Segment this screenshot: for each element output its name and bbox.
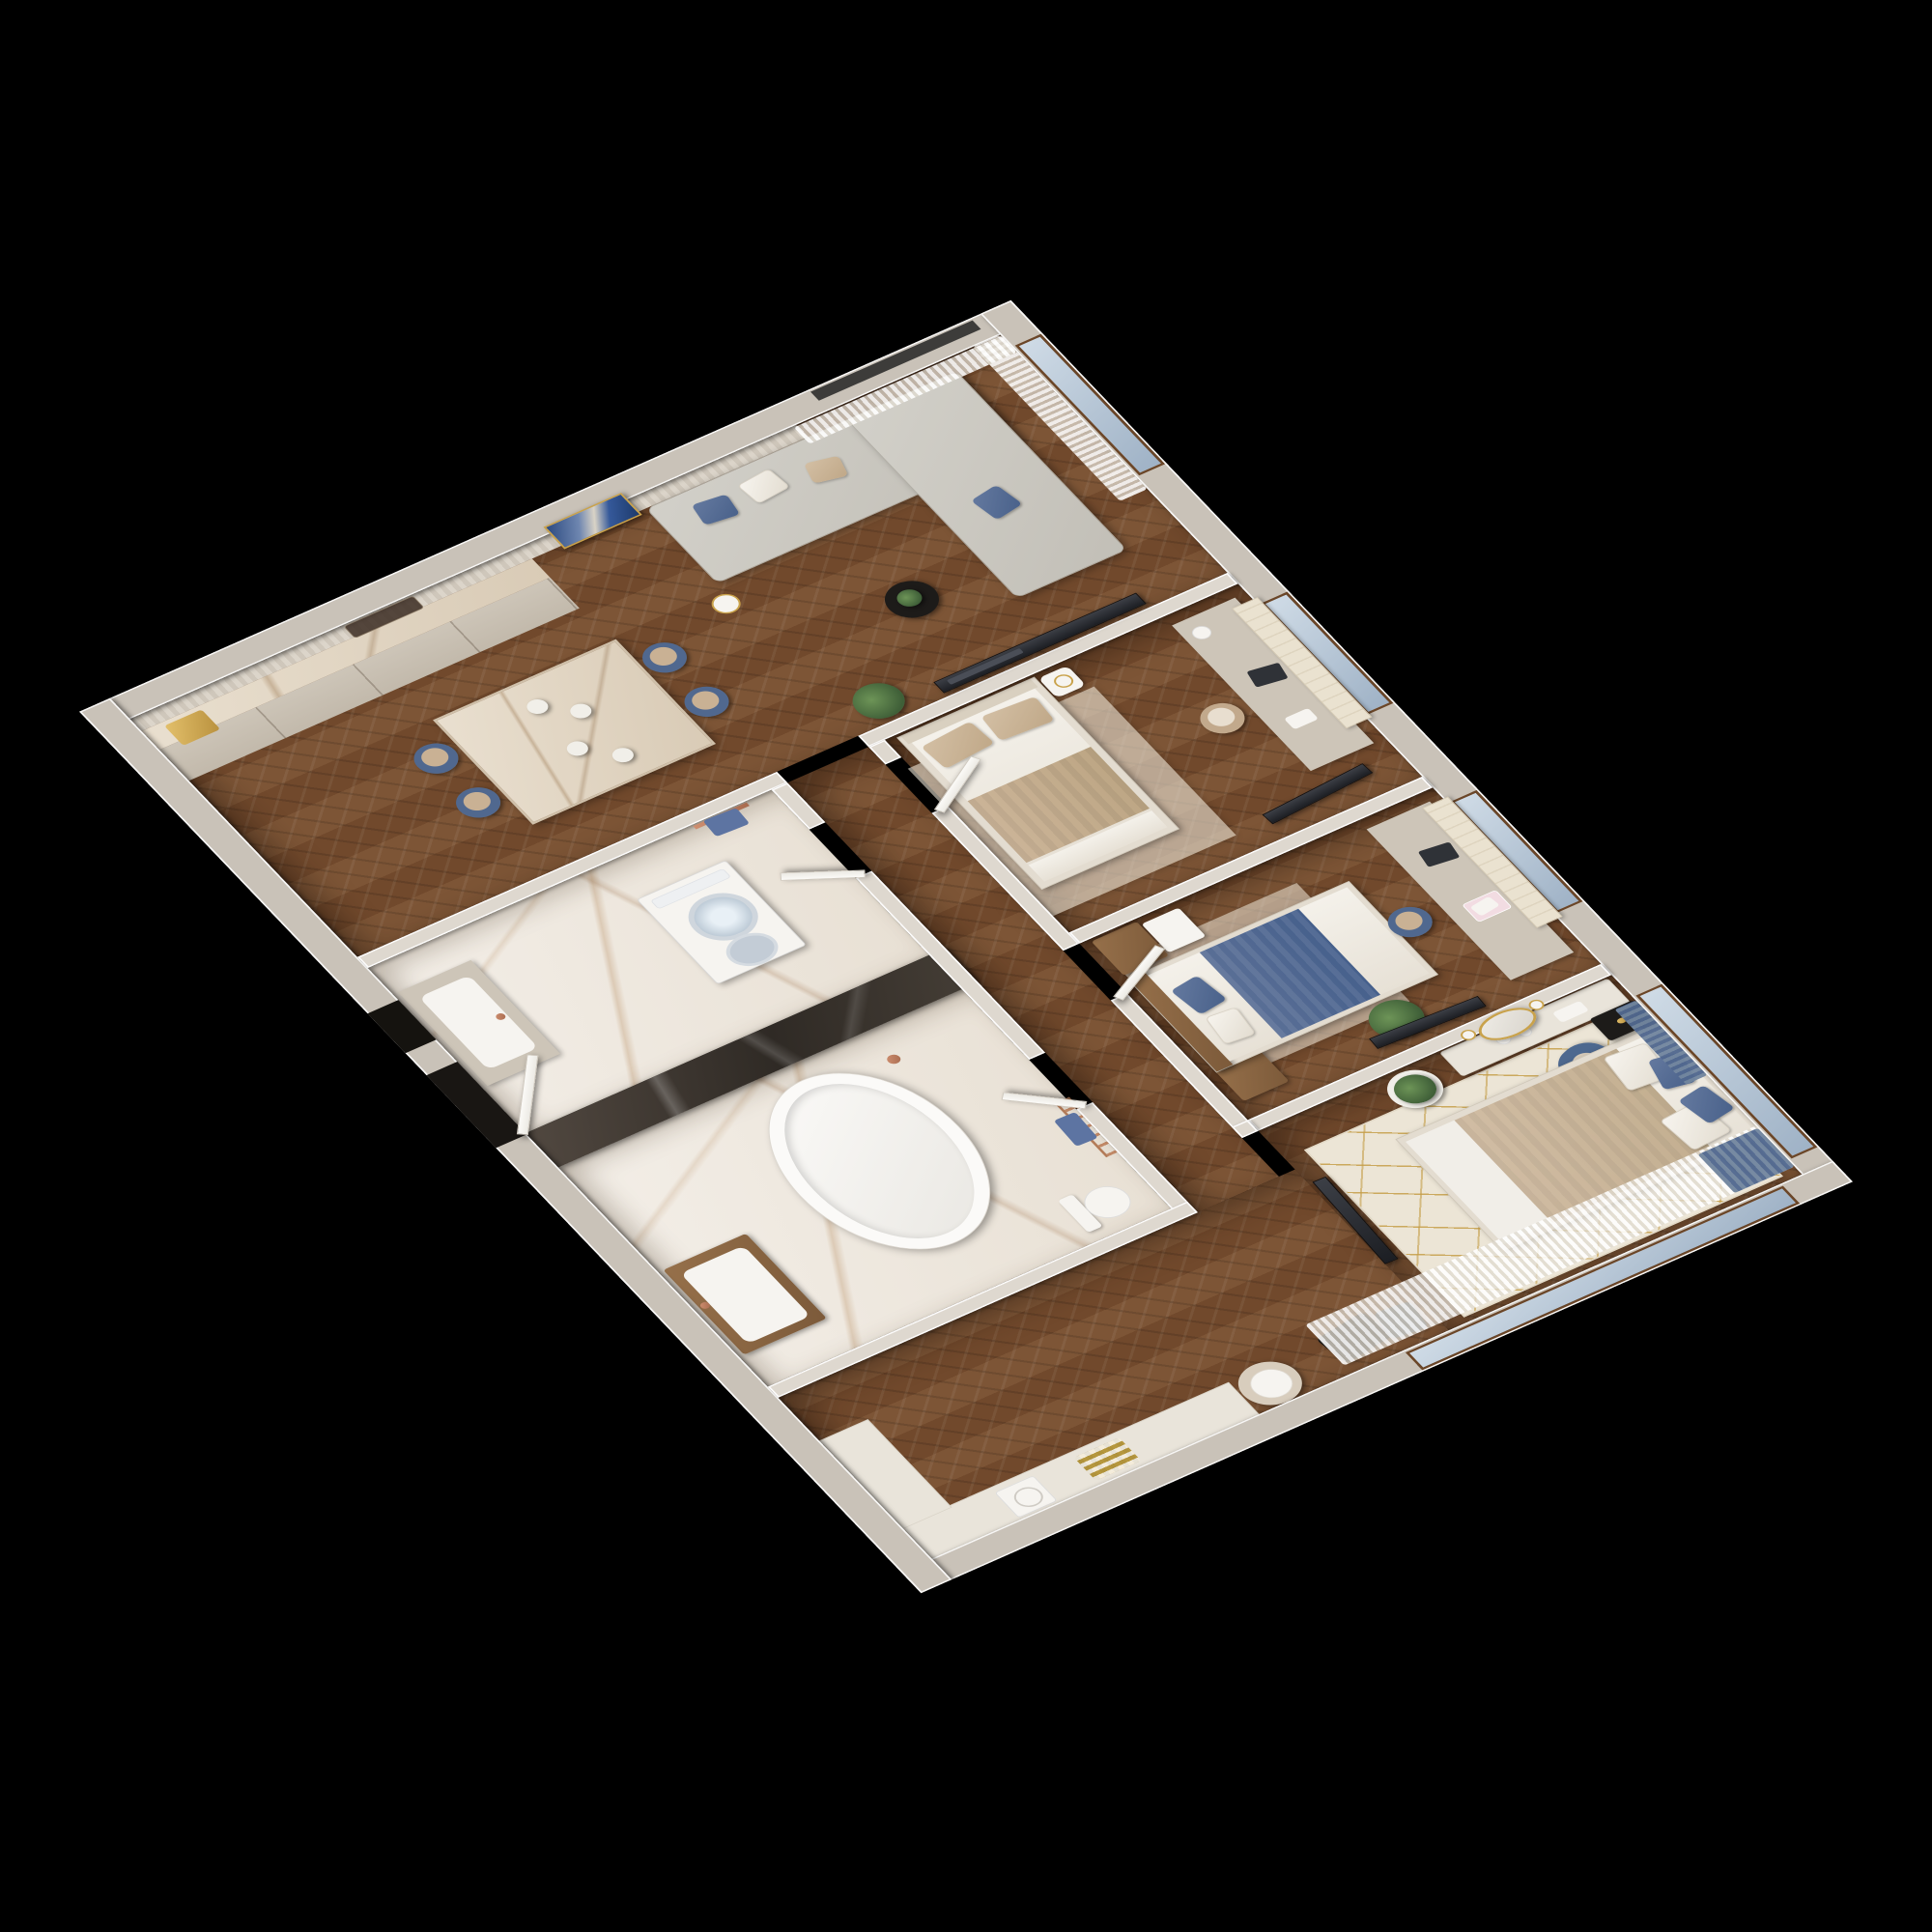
laptop — [1246, 663, 1288, 688]
desk-lamp-white — [1188, 624, 1215, 642]
plate — [566, 701, 595, 722]
vent-grille — [1009, 1484, 1048, 1511]
table-lamp — [1050, 672, 1077, 691]
plate — [609, 745, 638, 765]
plate — [523, 696, 552, 717]
desk-tray — [1284, 708, 1319, 730]
plate — [563, 739, 592, 759]
white-hat — [1242, 1364, 1301, 1404]
apartment-floor-plan — [79, 300, 1853, 1593]
laptop — [1418, 841, 1461, 867]
side-table-plant — [893, 586, 927, 610]
render-canvas — [0, 0, 1932, 1932]
vanity-tray — [1552, 1001, 1589, 1023]
